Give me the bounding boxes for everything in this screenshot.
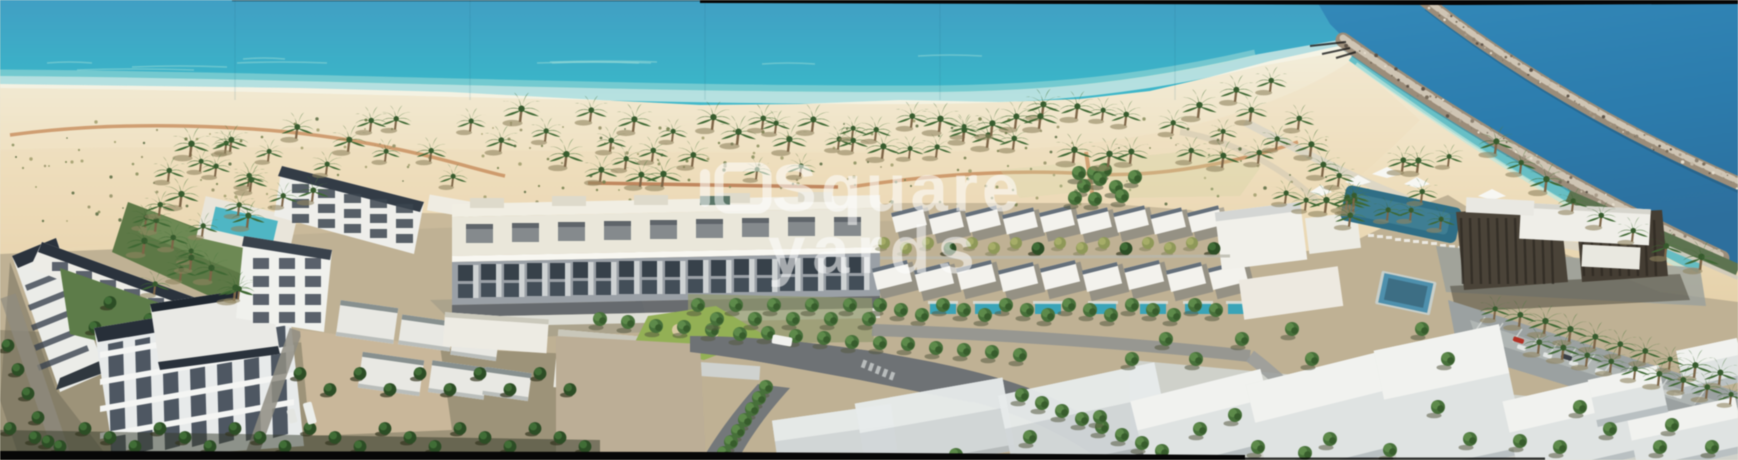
svg-text:yards: yards [768,213,982,288]
